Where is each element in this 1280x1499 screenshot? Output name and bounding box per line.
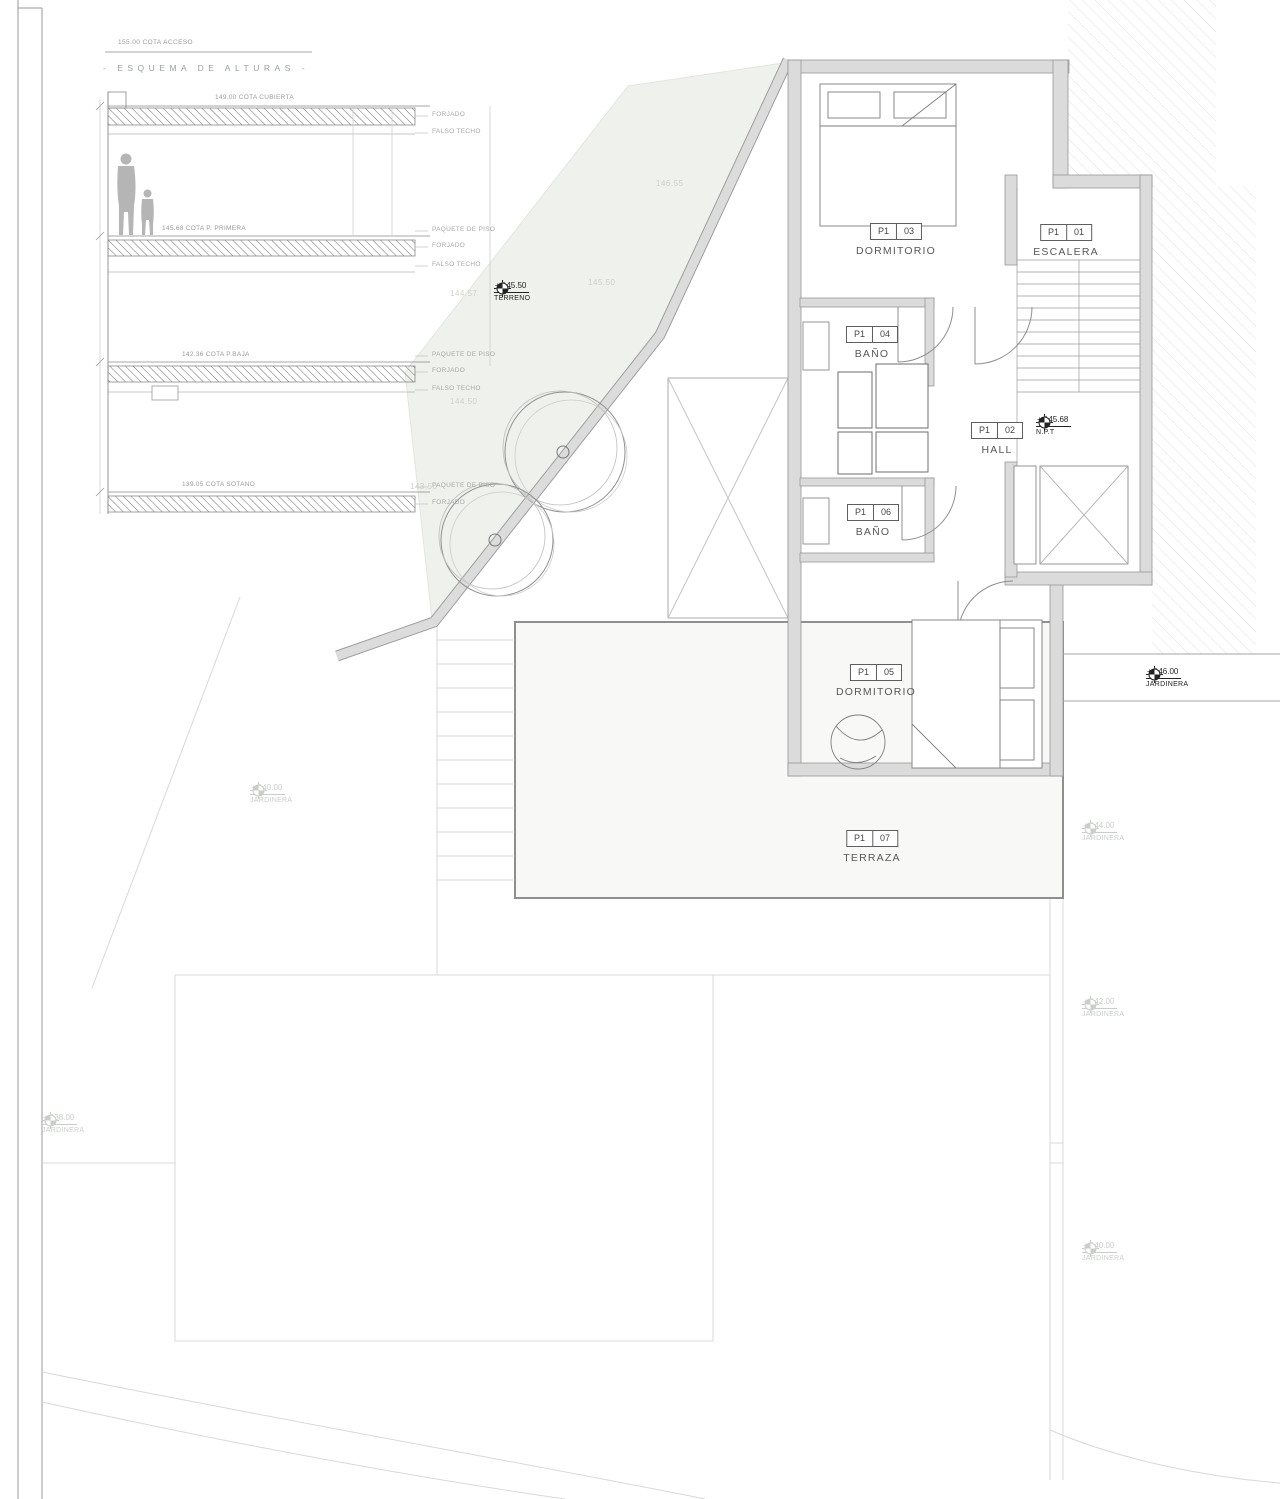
drawing-canvas: 155.00 COTA ACCESO - ESQUEMA DE ALTURAS … [0, 0, 1280, 1499]
room-tag: P105 [850, 664, 902, 681]
contour-label: 144.57 [450, 290, 477, 298]
cota-cubierta: 149.00 COTA CUBIERTA [215, 95, 294, 102]
room-tag: P102 [971, 422, 1023, 439]
sheet-frame [18, 0, 42, 1499]
contour-label: 143.50 [410, 483, 437, 491]
room-label-dormitorio-05: P105 DORMITORIO [836, 664, 916, 698]
layer-label: FORJADO [432, 112, 465, 119]
level-marker-jardinera-140-right: + 140.00JARDINERA [1082, 1240, 1124, 1262]
room-label-escalera-01: P101 ESCALERA [1033, 224, 1099, 258]
level-marker-terreno: + 145.50TERRENO [494, 280, 530, 302]
level-target-icon [1146, 666, 1163, 683]
cota-p-baja: 142.36 COTA P.BAJA [182, 352, 250, 359]
cota-p-primera: 145.68 COTA P. PRIMERA [162, 226, 246, 233]
level-target-icon [1082, 820, 1099, 837]
schema-title: - ESQUEMA DE ALTURAS - [103, 64, 309, 73]
level-target-icon [1082, 1240, 1099, 1257]
room-tag: P104 [846, 326, 898, 343]
cota-sotano: 139.05 COTA SOTANO [182, 482, 255, 489]
level-target-icon [1036, 414, 1053, 431]
level-marker-npt: + 145.68N.P.T [1036, 414, 1071, 436]
room-tag: P101 [1040, 224, 1092, 241]
layer-label: PAQUETE DE PISO [432, 227, 495, 234]
patio-crossed-rect [668, 378, 788, 618]
layer-label: FALSO TECHO [432, 129, 481, 136]
stair-shaft [1014, 466, 1128, 564]
level-marker-jardinera-140-left: + 140.00JARDINERA [250, 782, 292, 804]
layer-label: FORJADO [432, 500, 465, 507]
level-marker-jardinera-144: + 144.00JARDINERA [1082, 820, 1124, 842]
layer-label: FALSO TECHO [432, 262, 481, 269]
room-label-bano-04: P104 BAÑO [846, 326, 898, 360]
room-label-bano-06: P106 BAÑO [847, 504, 899, 538]
layer-label: FORJADO [432, 243, 465, 250]
room-tag: P106 [847, 504, 899, 521]
level-marker-jardinera-138: + 138.00JARDINERA [42, 1112, 84, 1134]
contour-label: 144.50 [450, 398, 477, 406]
room-tag: P103 [870, 223, 922, 240]
room-label-dormitorio-03: P103 DORMITORIO [856, 223, 936, 257]
layer-label: PAQUETE DE PISO [432, 483, 495, 490]
layer-label: FORJADO [432, 368, 465, 375]
level-target-icon [42, 1112, 59, 1129]
layer-label: FALSO TECHO [432, 386, 481, 393]
level-marker-jardinera-146: + 146.00JARDINERA [1146, 666, 1188, 688]
layer-label: PAQUETE DE PISO [432, 352, 495, 359]
level-target-icon [1082, 996, 1099, 1013]
level-marker-jardinera-142: + 142.00JARDINERA [1082, 996, 1124, 1018]
contour-label: 145.50 [588, 279, 615, 287]
level-target-icon [494, 280, 511, 297]
room-label-hall-02: P102 HALL [971, 422, 1023, 456]
room-label-terraza-07: P107 TERRAZA [843, 830, 900, 864]
level-target-icon [250, 782, 267, 799]
contour-label: 146.55 [656, 180, 683, 188]
person-silhouettes [117, 154, 153, 236]
room-tag: P107 [846, 830, 898, 847]
cota-acceso-label: 155.00 COTA ACCESO [118, 40, 193, 47]
